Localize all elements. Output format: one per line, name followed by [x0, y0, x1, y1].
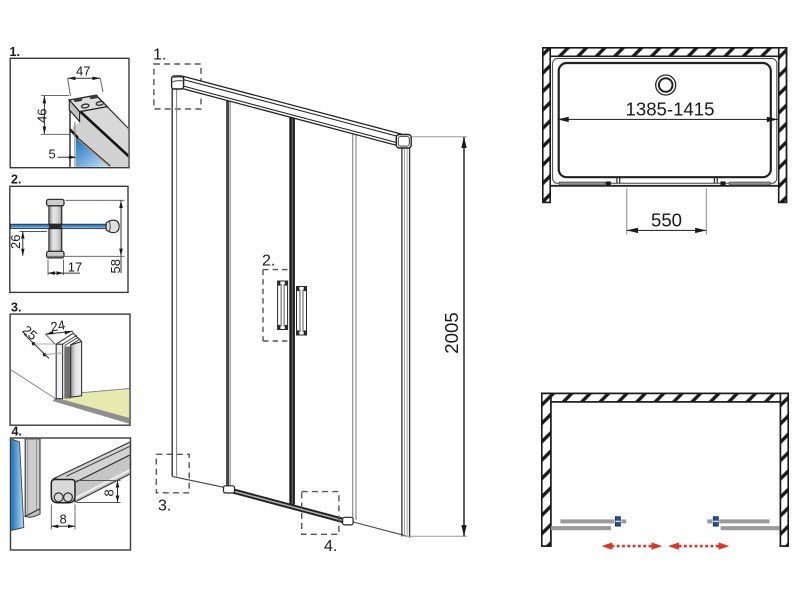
svg-text:3.: 3.	[11, 301, 21, 315]
svg-text:550: 550	[651, 210, 682, 231]
svg-text:4.: 4.	[12, 425, 22, 439]
svg-text:26: 26	[8, 235, 23, 249]
svg-text:5: 5	[49, 147, 56, 162]
svg-text:2005: 2005	[441, 312, 462, 353]
svg-text:1.: 1.	[10, 45, 20, 59]
svg-text:2.: 2.	[11, 173, 21, 187]
svg-text:1.: 1.	[153, 47, 166, 64]
svg-text:8: 8	[102, 489, 117, 496]
svg-text:3.: 3.	[158, 498, 171, 515]
svg-text:2.: 2.	[262, 253, 275, 270]
svg-text:17: 17	[68, 260, 82, 275]
svg-text:4.: 4.	[324, 538, 337, 555]
svg-text:24: 24	[49, 317, 66, 334]
svg-text:46: 46	[34, 109, 49, 123]
svg-text:1385-1415: 1385-1415	[626, 99, 715, 120]
svg-text:47: 47	[76, 64, 90, 79]
svg-text:58: 58	[108, 259, 123, 273]
svg-text:8: 8	[60, 512, 67, 527]
